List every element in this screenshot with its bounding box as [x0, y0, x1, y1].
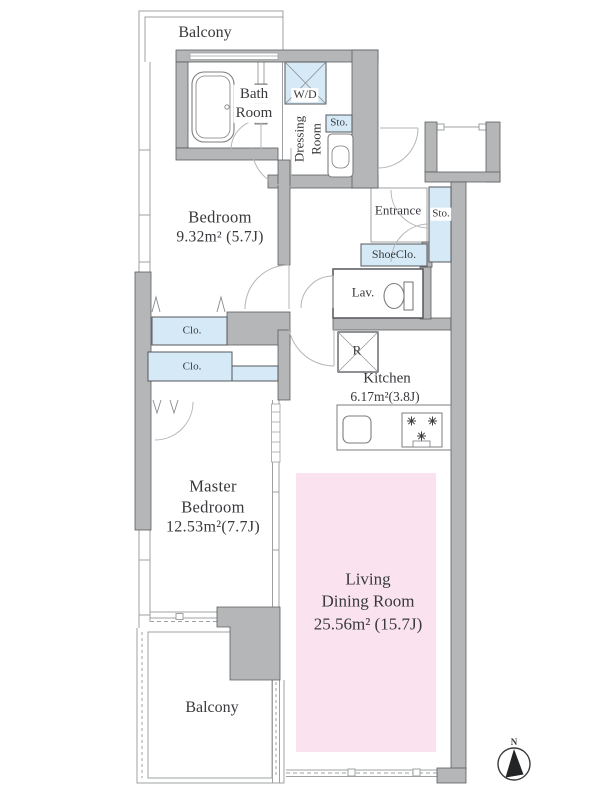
storage-right-label: Sto.	[430, 208, 451, 221]
bath-room-line2: Room	[234, 104, 275, 123]
living-dining-line1: Living	[314, 568, 423, 590]
front-door	[378, 128, 418, 168]
shoe-closet-label: ShoeClo.	[372, 248, 416, 262]
master-left-window	[139, 530, 150, 628]
bedroom-left-window	[139, 62, 150, 272]
bedroom-door	[245, 265, 289, 309]
stove-grill	[413, 441, 430, 447]
entrance-label: Entrance	[375, 204, 421, 219]
burner-2	[428, 417, 437, 426]
dressing-room-line2: Room	[308, 116, 325, 162]
ldk-door	[288, 320, 334, 366]
kitchen-area-label: 6.17m²(3.8J)	[350, 389, 419, 405]
compass-north-label: N	[511, 737, 518, 747]
vanity-basin	[332, 146, 349, 168]
compass-needle	[506, 749, 524, 778]
master-bedroom-area: 12.53m²(7.7J)	[166, 518, 260, 538]
lavatory-door	[301, 276, 333, 308]
wall-closet-right	[278, 330, 290, 400]
burner-1	[407, 417, 416, 426]
dressing-room-label: Dressing Room	[291, 116, 324, 162]
storage-right-box	[429, 187, 451, 262]
closet-upper-label: Clo.	[183, 325, 202, 338]
floorplan-page: Balcony Bath Room W/D Dressing Room Sto.…	[0, 0, 600, 800]
living-dining-label: Living Dining Room 25.56m² (15.7J)	[314, 568, 423, 635]
wall-bedroom-top	[176, 148, 278, 160]
ldr-window-handle-2	[413, 769, 420, 776]
wall-balcony-block	[217, 607, 280, 680]
master-bedroom-label: Master Bedroom 12.53m²(7.7J)	[166, 476, 260, 539]
kitchen-name-label: Kitchen	[363, 370, 410, 387]
toilet-tank	[404, 282, 413, 310]
wall-alcove-left	[425, 122, 437, 172]
closet-small-box	[232, 366, 278, 381]
bedroom-label: Bedroom 9.32m² (5.7J)	[176, 207, 263, 248]
washer-dryer-label: W/D	[291, 88, 318, 102]
wall-right-upper	[352, 50, 378, 188]
dressing-room-line1: Dressing	[291, 116, 308, 162]
storage-top-label: Sto.	[330, 117, 347, 130]
pleat-master-2	[170, 400, 178, 413]
master-bedroom-line2: Bedroom	[166, 497, 260, 518]
toilet-bowl	[384, 284, 404, 309]
pleat-bedroom-1	[152, 297, 160, 312]
burner-3	[417, 432, 426, 441]
alcove-end-left	[437, 124, 444, 130]
closet-lower-label: Clo.	[183, 361, 202, 374]
pocket-hatch-box	[272, 404, 281, 462]
wall-bath-left	[176, 62, 188, 148]
bathtub-drain	[225, 105, 229, 109]
alcove-end-right	[479, 124, 486, 130]
wall-bedroom-right	[278, 160, 290, 265]
lavatory-label: Lav.	[352, 286, 375, 301]
wall-right-main	[451, 182, 466, 770]
master-window-handle	[176, 614, 183, 620]
refrigerator-label: R	[353, 344, 362, 359]
balcony-top-label: Balcony	[178, 24, 231, 42]
wall-alcove-bottom	[425, 172, 500, 182]
compass	[498, 748, 530, 780]
pleat-master-1	[153, 400, 161, 413]
wall-kitchen-top	[333, 318, 451, 330]
ldr-window-handle-1	[348, 769, 355, 776]
bath-door	[231, 120, 261, 150]
pocket-hatch	[272, 404, 281, 462]
living-dining-line2: Dining Room	[314, 591, 423, 613]
balcony-bottom-label: Balcony	[185, 699, 238, 717]
bath-room-line1: Bath	[234, 85, 275, 104]
wall-left-mid	[135, 272, 151, 530]
wall-bottom-right	[437, 768, 466, 783]
living-dining-area: 25.56m² (15.7J)	[314, 613, 423, 635]
pleat-bedroom-2	[217, 297, 225, 312]
master-bedroom-line1: Master	[166, 476, 260, 497]
bedroom-area: 9.32m² (5.7J)	[176, 228, 263, 248]
kitchen-sink	[343, 416, 371, 443]
bedroom-name: Bedroom	[176, 207, 263, 228]
top-wall-window	[190, 53, 278, 60]
bath-room-label: Bath Room	[234, 85, 275, 123]
